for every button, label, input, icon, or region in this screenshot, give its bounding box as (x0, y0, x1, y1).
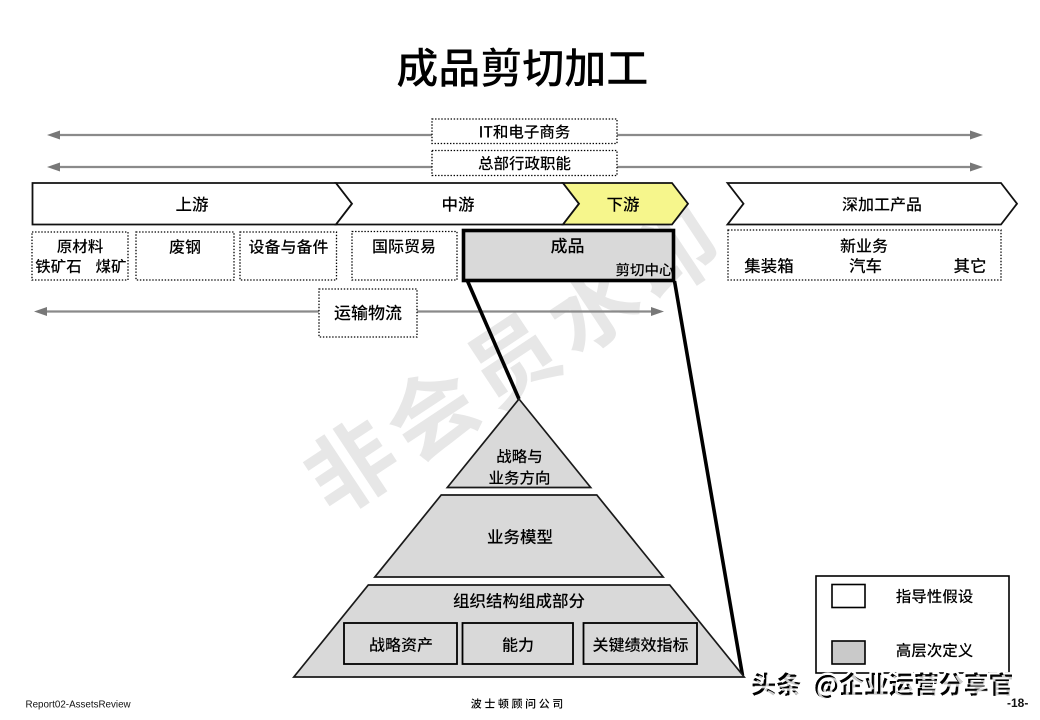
svg-text:-18-: -18- (1007, 696, 1028, 710)
svg-text:Report02-AssetsReview: Report02-AssetsReview (26, 700, 132, 711)
